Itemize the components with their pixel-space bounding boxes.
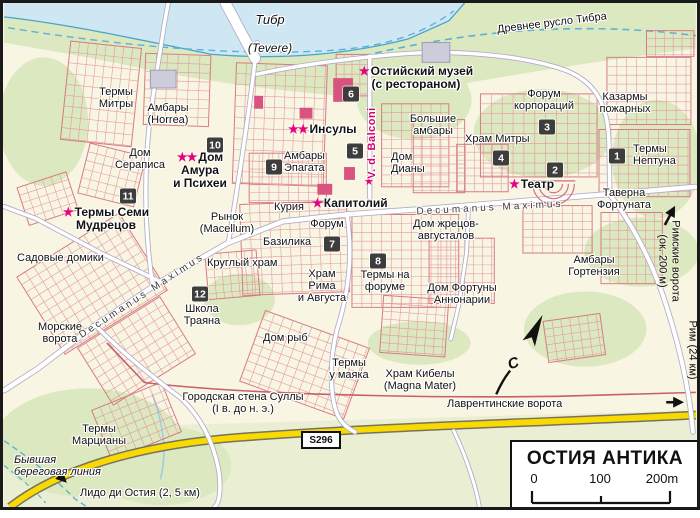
map-label-ambary-horrea: Амбары(Horrea): [148, 103, 189, 127]
map-label-dom-zhretsov-avgustalov: Дом жрецов-августалов: [413, 219, 479, 243]
map-label-rimskie-vorota: Римские ворота(ок. 200 м): [656, 220, 681, 302]
map-label-hram-kibely: Храм Кибелы(Magna Mater): [384, 369, 456, 393]
map-label-sadovye-domiki: Садовые домики: [17, 253, 104, 265]
map-label-hram-rima-i-avgusta: ХрамРимаи Августа: [298, 269, 346, 304]
sight-marker-4: 4: [493, 151, 509, 166]
sight-marker-2: 2: [547, 163, 563, 178]
map-label-bazilika: Базилика: [263, 237, 311, 249]
sight-star-icon: ★: [509, 177, 519, 191]
map-label-lavrentinskie-vorota: Лаврентинские ворота: [447, 399, 562, 411]
sight-marker-10: 10: [207, 138, 223, 153]
map-labels-layer: ТермыМитрыАмбары(Horrea)ДомСераписа★★Дом…: [3, 3, 697, 507]
map-label-termy-neptuna: ТермыНептуна: [633, 144, 676, 168]
legend-title: ОСТИЯ АНТИКА: [512, 448, 698, 470]
sight-marker-3: 3: [539, 120, 555, 135]
map-label-termy-semi-mudretsov: ★Термы СемиМудрецов: [63, 206, 149, 232]
scale-tick-100: 100: [589, 471, 611, 486]
street-label-decumanus-maximus-east: Decumanus Maximus: [416, 199, 564, 218]
map-label-morskie-vorota: Морскиеворота: [38, 322, 82, 346]
map-label-dom-serapisa: ДомСераписа: [115, 148, 165, 172]
scale-tick-0: 0: [530, 471, 537, 486]
map-label-hram-mitry: Храм Митры: [465, 134, 530, 146]
map-label-taverna-fortunata: ТавернаФортуната: [597, 188, 651, 212]
map-label-kazarmy-pozharnyh: Казармыпожарных: [599, 92, 650, 116]
map-label-old-riverbed: Древнее русло Тибра: [496, 11, 607, 36]
road-badge-s296: S296: [301, 431, 341, 449]
sight-marker-6: 6: [343, 87, 359, 102]
map-label-kuriya: Курия: [274, 202, 304, 214]
map-label-lido-di-ostiya: Лидо ди Остия (2, 5 км): [80, 488, 200, 500]
sight-marker-9: 9: [266, 160, 282, 175]
map-label-byvshaya-beregovaya-liniya: Бывшаябереговая линия: [14, 455, 101, 479]
map-label-dom-amura-i-psihei: ★★ДомАмураи Психеи: [173, 151, 227, 189]
map-label-forum: Форум: [310, 219, 343, 231]
sight-star-icon: ★: [63, 205, 73, 219]
map-label-dom-diany: ДомДианы: [391, 152, 425, 176]
map-label-tiber: Тибр: [255, 13, 284, 27]
sight-marker-8: 8: [370, 254, 386, 269]
scale-bar-wrap: 0 100 200m: [512, 471, 698, 507]
legend-box: ОСТИЯ АНТИКА 0 100 200m: [510, 440, 700, 510]
map-label-gorodskaya-stena-sully: Городская стена Суллы(I в. до н. э.): [182, 392, 303, 416]
map-label-ostijskij-muzej: ★Остийский музей(с рестораном): [359, 65, 473, 91]
map-label-kruglyj-hram: Круглый храм: [207, 258, 278, 270]
map-label-dom-ryb: Дом рыб: [263, 333, 308, 345]
map-label-insuly: ★★Инсулы: [288, 123, 356, 136]
ostia-antica-map: ТермыМитрыАмбары(Horrea)ДомСераписа★★Дом…: [0, 0, 700, 510]
sight-star-icon: ★: [359, 64, 369, 78]
map-label-termy-mitry: ТермыМитры: [99, 87, 133, 111]
map-label-shkola-trayana: ШколаТраяна: [184, 304, 221, 328]
sight-marker-12: 12: [192, 287, 208, 302]
sight-star-icon: ★: [312, 196, 322, 210]
sight-marker-5: 5: [347, 144, 363, 159]
map-label-bolshie-ambary: Большиеамбары: [410, 114, 456, 138]
map-label-rim-24-km: Рим (24 км): [686, 320, 699, 379]
map-label-ambary-gortenziya: АмбарыГортензия: [568, 255, 619, 279]
road-badge-text: S296: [309, 435, 332, 446]
sight-marker-11: 11: [120, 189, 136, 204]
map-label-dom-fortuny-annonarii: Дом ФортуныАннонарии: [427, 283, 496, 307]
sight-marker-1: 1: [609, 149, 625, 164]
scale-bar: [512, 487, 696, 505]
sight-star-icon: ★★: [177, 150, 197, 164]
map-label-termy-na-forume: Термы нафоруме: [360, 270, 409, 294]
map-label-forum-korporacij: Форумкорпораций: [514, 89, 574, 113]
sight-star-icon: ★★: [288, 122, 308, 136]
map-label-ambary-epagata: АмбарыЭпагата: [284, 151, 325, 175]
street-label-via-dei-balconi: V. d. Balconi: [366, 107, 378, 179]
map-label-tevere: (Tevere): [248, 42, 292, 55]
map-label-teatr: ★Театр: [509, 178, 554, 191]
scale-tick-200m: 200m: [646, 471, 679, 486]
map-label-rynok-macellum: Рынок(Macellum): [200, 212, 254, 236]
north-label: С: [506, 354, 522, 374]
map-label-kapitolij: ★Капитолий: [312, 197, 388, 210]
map-label-termy-marciany: ТермыМарцианы: [72, 424, 126, 448]
map-label-termy-u-mayaka: Термыу маяка: [329, 358, 368, 382]
sight-marker-7: 7: [324, 237, 340, 252]
